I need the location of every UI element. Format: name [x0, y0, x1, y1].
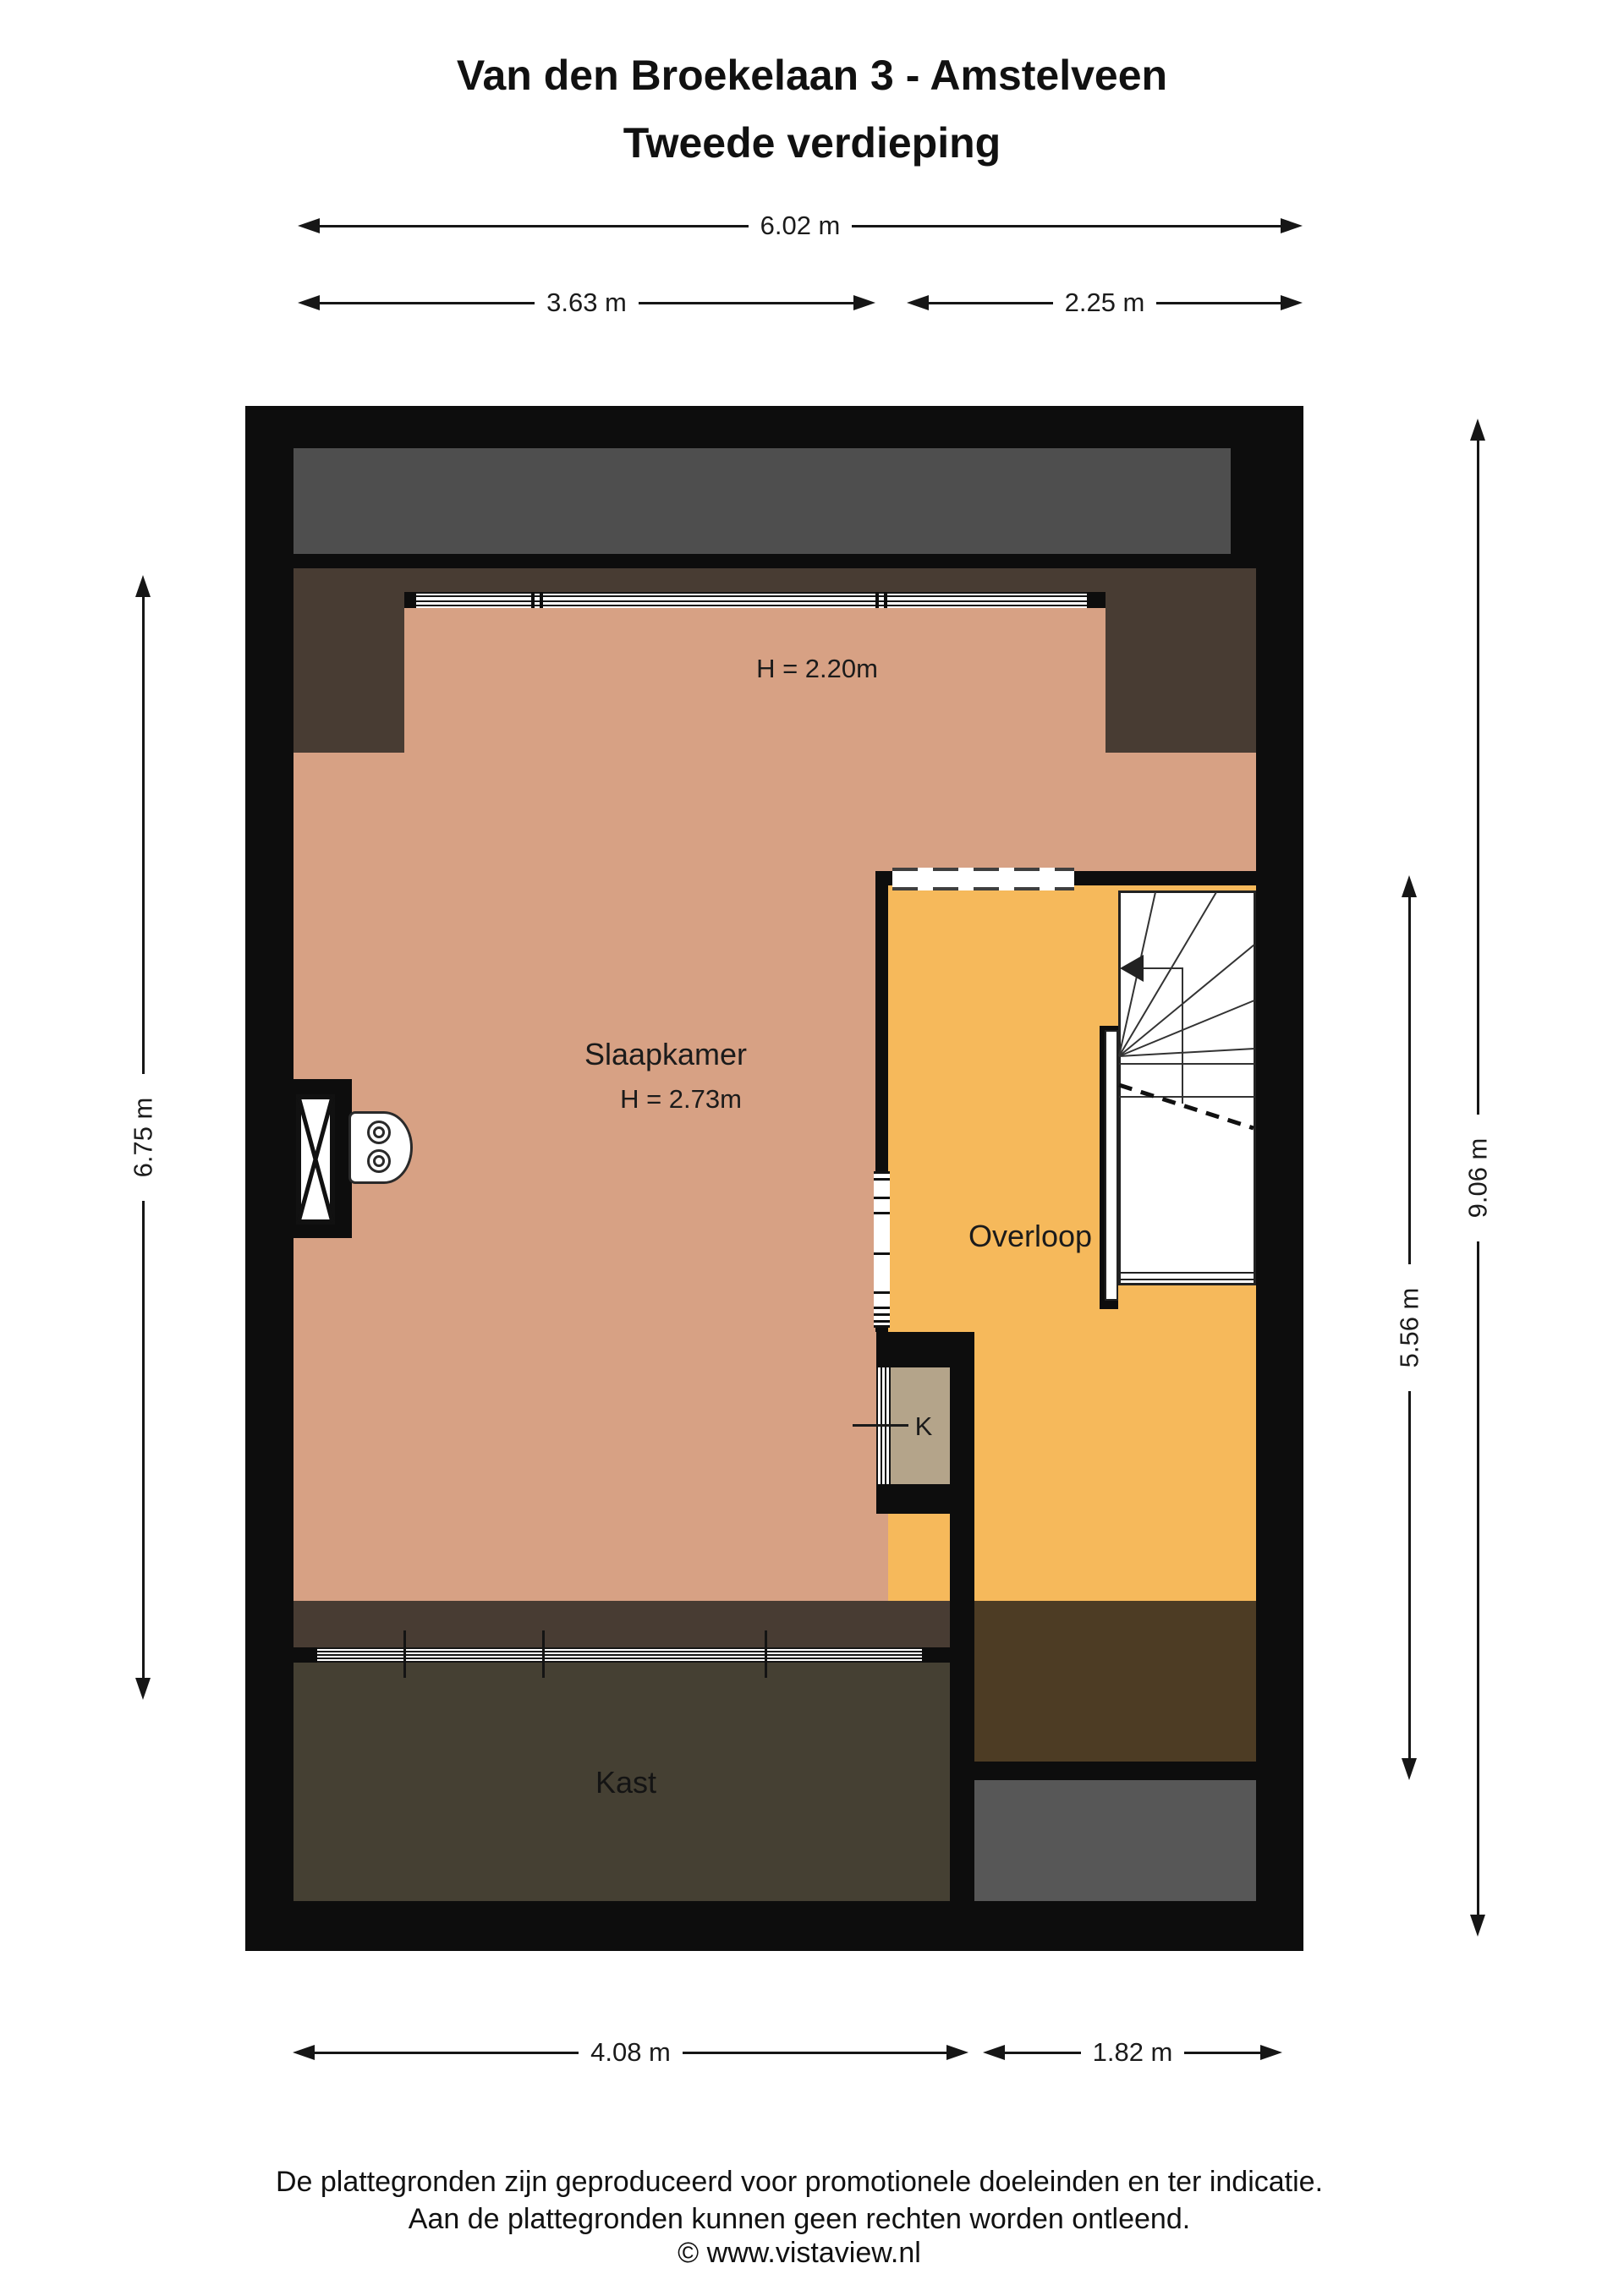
arrow-right-icon — [1260, 2045, 1282, 2060]
window-band — [404, 592, 1106, 608]
dimension-right-full: 9.06 m — [1461, 419, 1495, 1937]
window-cap — [1087, 592, 1106, 608]
arrow-right-icon — [853, 295, 875, 310]
window-mullion — [540, 592, 543, 608]
kast-door-tick — [542, 1630, 545, 1678]
arrow-left-icon — [298, 218, 320, 233]
boiler-dial-icon — [367, 1121, 391, 1144]
staircase-icon — [1118, 890, 1256, 1285]
footer-disclaimer-line2: Aan de plattegronden kunnen geen rechten… — [0, 2203, 1599, 2236]
arrow-down-icon — [135, 1678, 151, 1700]
dimension-top-left: 3.63 m — [298, 288, 875, 317]
attic-low-strip-left — [294, 568, 404, 753]
dimension-label: 1.82 m — [1081, 2037, 1185, 2068]
page-title-line2: Tweede verdieping — [0, 118, 1624, 167]
floor-plan-page: Van den Broekelaan 3 - Amstelveen Tweede… — [0, 0, 1624, 2296]
dimension-top-total: 6.02 m — [298, 211, 1303, 240]
footer-copyright: © www.vistaview.nl — [0, 2237, 1599, 2270]
label-attic-height: H = 2.20m — [756, 654, 878, 684]
arrow-up-icon — [1470, 419, 1485, 441]
kast-top-strip — [294, 1601, 950, 1647]
right-room-gray-floor — [974, 1780, 1256, 1901]
label-slaapkamer-height: H = 2.73m — [620, 1084, 742, 1115]
kast-door-tick — [765, 1630, 767, 1678]
window-cap — [404, 592, 416, 608]
page-title-line1: Van den Broekelaan 3 - Amstelveen — [0, 51, 1624, 100]
arrow-right-icon — [946, 2045, 968, 2060]
arrow-up-icon — [135, 575, 151, 597]
dimension-label: 9.06 m — [1462, 1137, 1493, 1218]
boiler-dial-icon — [367, 1149, 391, 1173]
window-mullion — [875, 592, 879, 608]
stairs-handrail — [1105, 1030, 1118, 1301]
dimension-label: 5.56 m — [1394, 1288, 1424, 1368]
label-k-closet: K — [915, 1411, 933, 1442]
arrow-left-icon — [907, 295, 929, 310]
dimension-label: 6.02 m — [749, 211, 853, 241]
arrow-down-icon — [1470, 1915, 1485, 1937]
arrow-down-icon — [1402, 1758, 1417, 1780]
folding-door — [874, 1171, 890, 1328]
kast-closet-doors — [317, 1647, 922, 1663]
roof-strip — [294, 448, 1231, 554]
right-room-dark-floor — [974, 1601, 1256, 1762]
chimney-flue-icon — [296, 1094, 335, 1225]
dimension-bottom-left: 4.08 m — [293, 2038, 968, 2067]
dimension-label: 4.08 m — [579, 2037, 683, 2068]
arrow-right-icon — [1281, 295, 1303, 310]
dimension-right-inner: 5.56 m — [1392, 875, 1426, 1780]
dimension-top-right: 2.25 m — [907, 288, 1303, 317]
kast-door-tick — [403, 1630, 406, 1678]
arrow-left-icon — [293, 2045, 315, 2060]
k-label-leader-line — [853, 1424, 908, 1427]
label-overloop: Overloop — [968, 1219, 1092, 1254]
arrow-left-icon — [298, 295, 320, 310]
arrow-up-icon — [1402, 875, 1417, 897]
label-slaapkamer: Slaapkamer — [584, 1037, 747, 1072]
attic-low-strip-right — [1106, 568, 1256, 753]
label-kast: Kast — [595, 1765, 656, 1800]
arrow-left-icon — [983, 2045, 1005, 2060]
dimension-bottom-right: 1.82 m — [983, 2038, 1282, 2067]
dimension-left-side: 6.75 m — [126, 575, 160, 1700]
boiler-icon — [348, 1111, 413, 1184]
dimension-label: 2.25 m — [1053, 288, 1157, 318]
dimension-label: 6.75 m — [128, 1098, 158, 1178]
arrow-right-icon — [1281, 218, 1303, 233]
void-opening — [892, 868, 1074, 890]
wall-divider — [950, 1332, 974, 1901]
window-mullion — [531, 592, 535, 608]
window-mullion — [884, 592, 887, 608]
dimension-label: 3.63 m — [535, 288, 639, 318]
footer-disclaimer-line1: De plattegronden zijn geproduceerd voor … — [0, 2166, 1599, 2199]
